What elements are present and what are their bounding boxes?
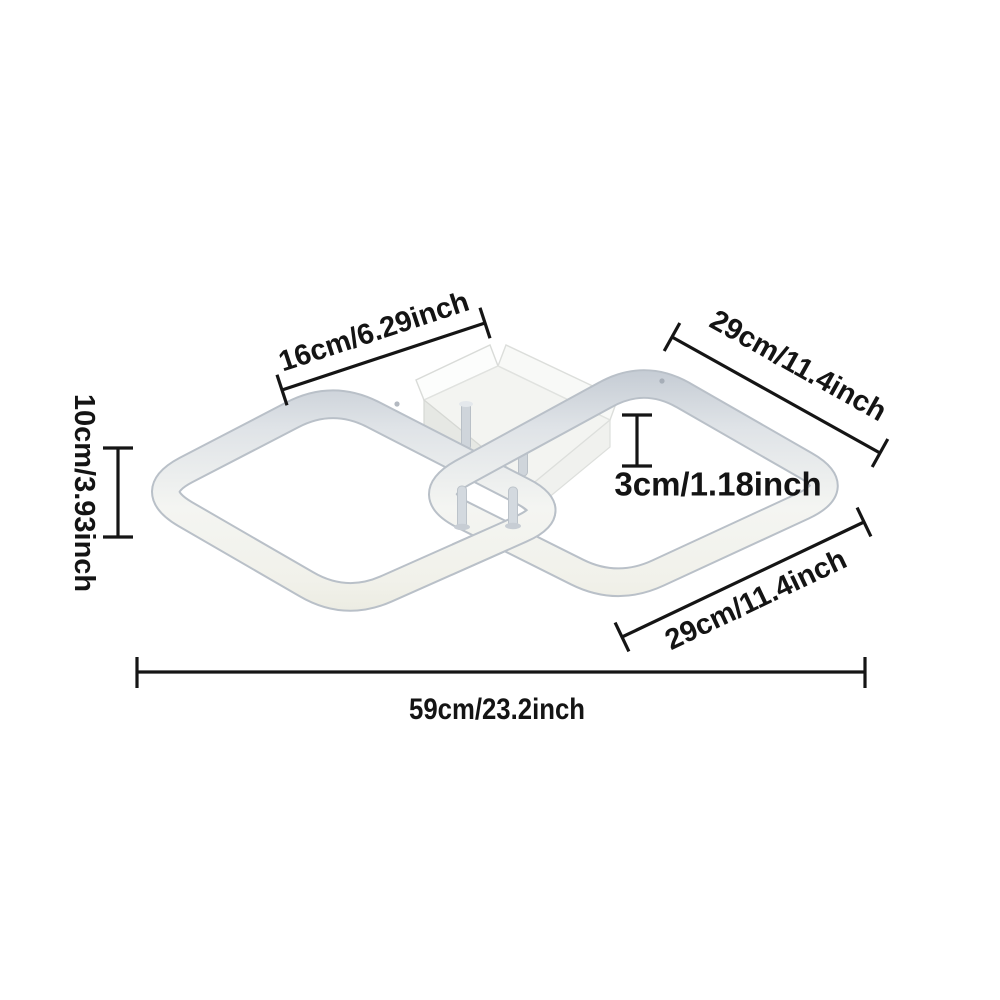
dim-canopy-height-label: 3cm/1.18inch [614, 466, 821, 503]
screw-dot [659, 378, 664, 383]
background [0, 0, 1000, 1000]
mounting-rod-1 [459, 401, 473, 450]
dim-overall-width-label: 59cm/23.2inch [409, 693, 585, 726]
screw-dot [394, 401, 399, 406]
dim-fixture-height-label: 10cm/3.93inch [68, 394, 100, 592]
product-dimension-diagram: 16cm/6.29inch 29cm/11.4inch 10cm/3.93inc… [0, 0, 1000, 1000]
diagram-canvas: 16cm/6.29inch 29cm/11.4inch 10cm/3.93inc… [0, 0, 1000, 1000]
